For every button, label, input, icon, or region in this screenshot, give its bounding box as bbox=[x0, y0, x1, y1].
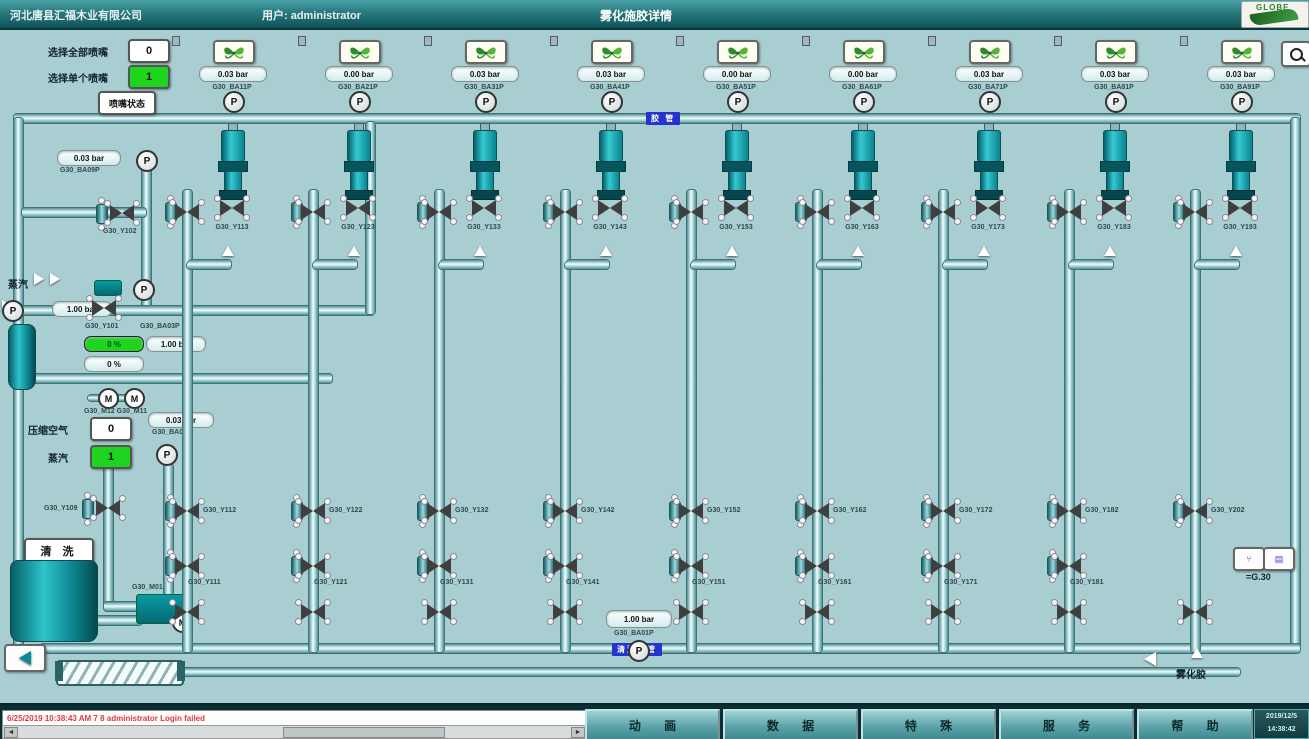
actuator-cap bbox=[1101, 190, 1129, 200]
valve-state-dots bbox=[170, 600, 175, 605]
lower-valve-bottom-tag: G30_Y121 bbox=[314, 579, 347, 586]
butterfly-icon bbox=[852, 45, 876, 60]
nozzle-valve[interactable] bbox=[346, 200, 370, 216]
nozzle-gauge-icon: P bbox=[853, 91, 875, 113]
valve-state-dots bbox=[971, 196, 976, 201]
bend-pipe bbox=[943, 260, 987, 269]
steam-trap bbox=[94, 280, 122, 296]
actuator-cylinder bbox=[977, 130, 1001, 162]
lower-valve-top-tag: G30_Y182 bbox=[1085, 507, 1118, 514]
nozzle-valve[interactable] bbox=[220, 200, 244, 216]
valve-state-dots bbox=[170, 499, 175, 504]
lower-valve-bottom-tag: G30_Y141 bbox=[566, 579, 599, 586]
branch-valve[interactable] bbox=[679, 204, 703, 220]
lower-valve-top[interactable] bbox=[805, 503, 829, 519]
scroll-left-icon[interactable]: ◄ bbox=[4, 727, 18, 738]
nozzle-pressure-tag: G30_BA91P bbox=[1180, 84, 1300, 91]
nozzle-pressure-display: 0.00 bar bbox=[829, 66, 897, 82]
nozzle-pressure-tag: G30_BA71P bbox=[928, 84, 1048, 91]
branch-valve[interactable] bbox=[931, 204, 955, 220]
nozzle-column: 0.03 bar G30_BA41P P G30_Y143 G30_Y142 G… bbox=[550, 36, 670, 681]
nozzle-gauge-icon: P bbox=[475, 91, 497, 113]
gauge-stem bbox=[676, 36, 684, 46]
valve-state-dots bbox=[1052, 600, 1057, 605]
butterfly-icon bbox=[726, 45, 750, 60]
nozzle-gauge-icon: P bbox=[979, 91, 1001, 113]
gauge-stem bbox=[424, 36, 432, 46]
drain-valve[interactable] bbox=[301, 604, 325, 620]
valve-state-dots bbox=[674, 554, 679, 559]
actuator-cylinder bbox=[1229, 130, 1253, 162]
nozzle-column: 0.03 bar G30_BA11P P G30_Y113 G30_Y112 G… bbox=[172, 36, 292, 681]
nozzle-select-button[interactable] bbox=[843, 40, 885, 64]
steam2-value[interactable]: 1 bbox=[90, 445, 132, 469]
motors-tag: G30_M12 G30_M11 bbox=[84, 408, 147, 415]
lower-valve-bottom-tag: G30_Y111 bbox=[188, 579, 221, 586]
bottom-bar: 6/25/2019 10:38:43 AM 7 8 administrator … bbox=[0, 703, 1309, 739]
valve-state-dots bbox=[341, 196, 346, 201]
nozzle-pressure-display: 0.03 bar bbox=[451, 66, 519, 82]
nozzle-pressure-tag: G30_BA11P bbox=[172, 84, 292, 91]
nozzle-gauge-icon: P bbox=[1231, 91, 1253, 113]
steam2-label: 蒸汽 bbox=[48, 450, 68, 465]
nozzle-column: 0.00 bar G30_BA61P P G30_Y163 G30_Y162 G… bbox=[802, 36, 922, 681]
nozzle-pressure-display: 0.03 bar bbox=[1081, 66, 1149, 82]
wash-water-tank bbox=[10, 560, 98, 642]
nozzle-column: 0.03 bar G30_BA91P P G30_Y193 G30_Y202 bbox=[1180, 36, 1300, 681]
valve-state-dots bbox=[1178, 499, 1183, 504]
valve-state-dots bbox=[548, 499, 553, 504]
actuator-cap bbox=[219, 190, 247, 200]
alarm-scrollbar[interactable]: ◄ ► bbox=[2, 725, 587, 739]
actuator-cap bbox=[975, 190, 1003, 200]
actuator-lower-cylinder bbox=[602, 171, 620, 191]
actuator-cap bbox=[345, 190, 373, 200]
valve-state-dots bbox=[296, 600, 301, 605]
back-button[interactable] bbox=[4, 644, 46, 672]
valve-state-dots bbox=[296, 554, 301, 559]
valve-state-dots bbox=[548, 200, 553, 205]
valve-actuator bbox=[82, 499, 94, 519]
percent-display: 0 % bbox=[84, 356, 144, 372]
logged-in-user: 用户: administrator bbox=[262, 7, 361, 23]
select-all-nozzles-value[interactable]: 0 bbox=[128, 39, 170, 63]
valve-state-dots bbox=[1178, 200, 1183, 205]
nozzle-column: 0.03 bar G30_BA71P P G30_Y173 G30_Y172 G… bbox=[928, 36, 1048, 681]
lower-valve-bottom[interactable] bbox=[931, 558, 955, 574]
actuator-cap bbox=[849, 190, 877, 200]
time-text: 14:38:42 bbox=[1255, 723, 1308, 736]
lower-valve-bottom-tag: G30_Y171 bbox=[944, 579, 977, 586]
valve-state-dots bbox=[215, 196, 220, 201]
valve-state-dots bbox=[105, 201, 110, 206]
nozzle-valve[interactable] bbox=[1102, 200, 1126, 216]
valve-open-percent: 0 % bbox=[84, 336, 144, 352]
actuator-cylinder bbox=[599, 130, 623, 162]
valve-y102[interactable] bbox=[110, 205, 134, 221]
drain-valve[interactable] bbox=[931, 604, 955, 620]
flow-arrow-icon bbox=[600, 246, 612, 256]
lower-valve-bottom[interactable] bbox=[805, 558, 829, 574]
glue-pipe-label: 胶 管 bbox=[646, 112, 680, 125]
lower-valve-bottom[interactable] bbox=[427, 558, 451, 574]
outlet-label: 雾化胶 bbox=[1176, 666, 1206, 681]
lower-valve-top[interactable] bbox=[931, 503, 955, 519]
valve-state-dots bbox=[1052, 200, 1057, 205]
nozzle-select-button[interactable] bbox=[465, 40, 507, 64]
actuator-lower-cylinder bbox=[728, 171, 746, 191]
valve-y101-tag: G30_Y101 bbox=[85, 323, 118, 330]
nozzle-select-button[interactable] bbox=[1221, 40, 1263, 64]
valve-state-dots bbox=[926, 200, 931, 205]
lower-valve-bottom-tag: G30_Y161 bbox=[818, 579, 851, 586]
lower-valve-top-tag: G30_Y202 bbox=[1211, 507, 1244, 514]
valve-y102-tag: G30_Y102 bbox=[103, 228, 136, 235]
menu-button-service[interactable]: 服 务 bbox=[999, 709, 1134, 739]
nozzle-column: 0.03 bar G30_BA31P P G30_Y133 G30_Y132 G… bbox=[424, 36, 544, 681]
bend-pipe bbox=[313, 260, 357, 269]
valve-state-dots bbox=[800, 600, 805, 605]
valve-y101[interactable] bbox=[92, 300, 116, 316]
nozzle-select-button[interactable] bbox=[969, 40, 1011, 64]
flow-arrow-icon bbox=[1230, 246, 1242, 256]
valve-state-dots bbox=[548, 600, 553, 605]
flow-arrow-icon bbox=[348, 246, 360, 256]
actuator-cap bbox=[471, 190, 499, 200]
nozzle-select-button[interactable] bbox=[339, 40, 381, 64]
nozzle-gauge-icon: P bbox=[349, 91, 371, 113]
drain-valve[interactable] bbox=[175, 604, 199, 620]
menu-button-special[interactable]: 特 殊 bbox=[861, 709, 996, 739]
nozzle-column: 0.03 bar G30_BA81P P G30_Y183 G30_Y182 G… bbox=[1054, 36, 1174, 681]
nozzle-pressure-display: 0.03 bar bbox=[199, 66, 267, 82]
pressure-gauge-icon: P bbox=[136, 150, 158, 172]
date-text: 2019/12/5 bbox=[1255, 710, 1308, 723]
butterfly-icon bbox=[222, 45, 246, 60]
valve-state-dots bbox=[87, 296, 92, 301]
nozzle-valve[interactable] bbox=[1228, 200, 1252, 216]
compressed-air-label: 压缩空气 bbox=[28, 422, 68, 437]
lower-valve-bottom-tag: G30_Y181 bbox=[1070, 579, 1103, 586]
company-logo: GLOBE bbox=[1241, 1, 1309, 28]
valve-state-dots bbox=[926, 554, 931, 559]
nozzle-pressure-display: 0.03 bar bbox=[955, 66, 1023, 82]
page-title: 雾化施胶详情 bbox=[600, 7, 672, 24]
valve-state-dots bbox=[674, 499, 679, 504]
nozzle-pressure-tag: G30_BA21P bbox=[298, 84, 418, 91]
lower-valve-top[interactable] bbox=[301, 503, 325, 519]
select-single-nozzle-label: 选择单个喷嘴 bbox=[48, 70, 108, 85]
valve-state-dots bbox=[170, 200, 175, 205]
nozzle-select-button[interactable] bbox=[1095, 40, 1137, 64]
lower-valve-bottom[interactable] bbox=[301, 558, 325, 574]
butterfly-icon bbox=[600, 45, 624, 60]
scada-screen: 河北唐县汇福木业有限公司 用户: administrator 雾化施胶详情 GL… bbox=[0, 0, 1309, 739]
bend-pipe bbox=[691, 260, 735, 269]
nozzle-valve[interactable] bbox=[598, 200, 622, 216]
lower-valve-top-tag: G30_Y112 bbox=[203, 507, 236, 514]
butterfly-icon bbox=[348, 45, 372, 60]
branch-valve[interactable] bbox=[553, 204, 577, 220]
valve-y109-tag: G30_Y109 bbox=[44, 505, 77, 512]
valve-state-dots bbox=[926, 600, 931, 605]
valve-state-dots bbox=[170, 554, 175, 559]
pump-tag: G30_M01 bbox=[132, 584, 163, 591]
flow-arrow-icon bbox=[50, 273, 60, 285]
valve-state-dots bbox=[674, 600, 679, 605]
valve-state-dots bbox=[674, 200, 679, 205]
flow-arrow-icon bbox=[726, 246, 738, 256]
lower-valve-top-tag: G30_Y142 bbox=[581, 507, 614, 514]
lower-valve-bottom-tag: G30_Y131 bbox=[440, 579, 473, 586]
actuator-cylinder bbox=[347, 130, 371, 162]
actuator-lower-cylinder bbox=[476, 171, 494, 191]
valve-state-dots bbox=[800, 554, 805, 559]
gauge-stem bbox=[928, 36, 936, 46]
valve-y109[interactable] bbox=[96, 500, 120, 516]
gauge-stem bbox=[1180, 36, 1188, 46]
valve-state-dots bbox=[926, 499, 931, 504]
nozzle-gauge-icon: P bbox=[223, 91, 245, 113]
actuator-lower-cylinder bbox=[1106, 171, 1124, 191]
bend-pipe bbox=[187, 260, 231, 269]
bend-pipe bbox=[1069, 260, 1113, 269]
nozzle-select-button[interactable] bbox=[591, 40, 633, 64]
nozzle-valve[interactable] bbox=[976, 200, 1000, 216]
gauge-stem bbox=[550, 36, 558, 46]
valve-state-dots bbox=[422, 600, 427, 605]
actuator-lower-cylinder bbox=[224, 171, 242, 191]
actuator-lower-cylinder bbox=[980, 171, 998, 191]
nozzle-select-button[interactable] bbox=[717, 40, 759, 64]
title-bar: 河北唐县汇福木业有限公司 用户: administrator 雾化施胶详情 GL… bbox=[0, 0, 1309, 30]
valve-state-dots bbox=[719, 196, 724, 201]
butterfly-icon bbox=[1104, 45, 1128, 60]
lower-valve-bottom[interactable] bbox=[553, 558, 577, 574]
actuator-cylinder bbox=[473, 130, 497, 162]
nozzle-pressure-tag: G30_BA61P bbox=[802, 84, 922, 91]
gauge-stem bbox=[1054, 36, 1062, 46]
actuator-lower-cylinder bbox=[350, 171, 368, 191]
lower-valve-top-tag: G30_Y132 bbox=[455, 507, 488, 514]
nozzle-pressure-display: 0.03 bar bbox=[577, 66, 645, 82]
lower-valve-bottom[interactable] bbox=[1057, 558, 1081, 574]
lower-valve-bottom-tag: G30_Y151 bbox=[692, 579, 725, 586]
valve-state-dots bbox=[467, 196, 472, 201]
butterfly-icon bbox=[474, 45, 498, 60]
branch-valve[interactable] bbox=[175, 204, 199, 220]
lower-valve-top[interactable] bbox=[553, 503, 577, 519]
lower-valve-bottom[interactable] bbox=[679, 558, 703, 574]
nozzle-pressure-display: 0.00 bar bbox=[703, 66, 771, 82]
branch-valve[interactable] bbox=[301, 204, 325, 220]
valve-state-dots bbox=[593, 196, 598, 201]
drain-valve[interactable] bbox=[679, 604, 703, 620]
lower-valve-top[interactable] bbox=[175, 503, 199, 519]
company-name: 河北唐县汇福木业有限公司 bbox=[10, 7, 142, 23]
nozzle-valve[interactable] bbox=[724, 200, 748, 216]
valve-state-dots bbox=[422, 554, 427, 559]
valve-state-dots bbox=[800, 499, 805, 504]
valve-state-dots bbox=[1052, 499, 1057, 504]
scroll-thumb[interactable] bbox=[283, 727, 445, 738]
bend-pipe bbox=[565, 260, 609, 269]
menu-button-animation[interactable]: 动 画 bbox=[585, 709, 720, 739]
lower-valve-top-tag: G30_Y152 bbox=[707, 507, 740, 514]
nozzle-gauge-icon: P bbox=[601, 91, 623, 113]
bend-pipe bbox=[1195, 260, 1239, 269]
valve-state-dots bbox=[422, 499, 427, 504]
motor-m11-icon[interactable]: M bbox=[124, 388, 145, 409]
flow-arrow-icon bbox=[474, 246, 486, 256]
actuator-cap bbox=[1227, 190, 1255, 200]
branch-valve[interactable] bbox=[1057, 204, 1081, 220]
nozzle-status-button[interactable]: 喷嘴状态 bbox=[98, 91, 156, 115]
valve-actuator bbox=[96, 204, 108, 224]
valve-state-dots bbox=[91, 496, 96, 501]
steam-pressure-gauge-icon: P bbox=[2, 300, 24, 322]
gauge-stem bbox=[172, 36, 180, 46]
bend-pipe bbox=[817, 260, 861, 269]
branch-valve[interactable] bbox=[805, 204, 829, 220]
valve-state-dots bbox=[422, 200, 427, 205]
alarm-line[interactable]: 6/25/2019 10:38:43 AM 7 8 administrator … bbox=[2, 710, 591, 726]
menu-button-data[interactable]: 数 据 bbox=[723, 709, 858, 739]
outlet-arrow-icon bbox=[1191, 648, 1203, 658]
valve-state-dots bbox=[296, 499, 301, 504]
nozzle-pressure-display: 0.03 bar bbox=[1207, 66, 1275, 82]
nozzle-select-button[interactable] bbox=[213, 40, 255, 64]
drain-valve[interactable] bbox=[805, 604, 829, 620]
select-single-nozzle-value[interactable]: 1 bbox=[128, 65, 170, 89]
nozzle-gauge-icon: P bbox=[1105, 91, 1127, 113]
lower-valve-top-tag: G30_Y122 bbox=[329, 507, 362, 514]
drain-valve[interactable] bbox=[553, 604, 577, 620]
nozzle-pressure-tag: G30_BA31P bbox=[424, 84, 544, 91]
lower-valve-top-tag: G30_Y172 bbox=[959, 507, 992, 514]
flow-arrow-icon bbox=[1144, 652, 1156, 666]
wash-gauge-icon: P bbox=[628, 640, 650, 662]
actuator-cylinder bbox=[221, 130, 245, 162]
actuator-lower-cylinder bbox=[854, 171, 872, 191]
actuator-cylinder bbox=[1103, 130, 1127, 162]
valve-state-dots bbox=[548, 554, 553, 559]
nozzle-column: 0.00 bar G30_BA51P P G30_Y153 G30_Y152 G… bbox=[676, 36, 796, 681]
nozzle-pressure-display: 0.00 bar bbox=[325, 66, 393, 82]
branch-valve[interactable] bbox=[1183, 204, 1207, 220]
valve-state-dots bbox=[296, 200, 301, 205]
flow-arrow-icon bbox=[222, 246, 234, 256]
nozzle-column: 0.00 bar G30_BA21P P G30_Y123 G30_Y122 G… bbox=[298, 36, 418, 681]
scroll-right-icon[interactable]: ► bbox=[571, 727, 585, 738]
select-all-nozzles-label: 选择全部喷嘴 bbox=[48, 44, 108, 59]
gauge-stem bbox=[802, 36, 810, 46]
drain-valve[interactable] bbox=[1057, 604, 1081, 620]
nozzle-pressure-tag: G30_BA81P bbox=[1054, 84, 1174, 91]
motor-m12-icon[interactable]: M bbox=[98, 388, 119, 409]
datetime-display: 2019/12/5 14:38:42 bbox=[1254, 709, 1309, 739]
drain-valve[interactable] bbox=[427, 604, 451, 620]
butterfly-icon bbox=[1230, 45, 1254, 60]
steam-label: 蒸汽 bbox=[8, 276, 28, 291]
pressure-tag: G30_BA09P bbox=[60, 167, 100, 174]
nozzle-gauge-icon: P bbox=[727, 91, 749, 113]
wash-feed-pipe bbox=[104, 458, 113, 610]
valve-state-dots bbox=[1223, 196, 1228, 201]
nozzle-valve[interactable] bbox=[472, 200, 496, 216]
valve-state-dots bbox=[1097, 196, 1102, 201]
actuator-cylinder bbox=[851, 130, 875, 162]
back-arrow-icon bbox=[19, 651, 31, 665]
screw-conveyor bbox=[56, 660, 184, 686]
lower-valve-top-tag: G30_Y162 bbox=[833, 507, 866, 514]
flow-arrow-icon bbox=[34, 273, 44, 285]
actuator-lower-cylinder bbox=[1232, 171, 1250, 191]
condensate-pot bbox=[8, 324, 36, 390]
bend-pipe bbox=[439, 260, 483, 269]
nozzle-pressure-tag: G30_BA41P bbox=[550, 84, 670, 91]
nozzle-pressure-tag: G30_BA51P bbox=[676, 84, 796, 91]
nozzle-valve[interactable] bbox=[850, 200, 874, 216]
menu-button-help[interactable]: 帮 助 bbox=[1137, 709, 1253, 739]
actuator-cylinder bbox=[725, 130, 749, 162]
lower-valve-top[interactable] bbox=[1057, 503, 1081, 519]
branch-valve[interactable] bbox=[427, 204, 451, 220]
butterfly-icon bbox=[978, 45, 1002, 60]
lower-valve-top[interactable] bbox=[679, 503, 703, 519]
valve-state-dots bbox=[1178, 600, 1183, 605]
valve-state-dots bbox=[1052, 554, 1057, 559]
pressure-display: 0.03 bar bbox=[57, 150, 121, 166]
flow-arrow-icon bbox=[978, 246, 990, 256]
flow-arrow-icon bbox=[852, 246, 864, 256]
gauge-icon: P bbox=[133, 279, 155, 301]
valve-state-dots bbox=[800, 200, 805, 205]
actuator-cap bbox=[597, 190, 625, 200]
gauge-stem bbox=[298, 36, 306, 46]
lower-valve-bottom[interactable] bbox=[175, 558, 199, 574]
compressed-air-value[interactable]: 0 bbox=[90, 417, 132, 441]
lower-valve-top[interactable] bbox=[427, 503, 451, 519]
lower-valve-top[interactable] bbox=[1183, 503, 1207, 519]
actuator-cap bbox=[723, 190, 751, 200]
flow-arrow-icon bbox=[1104, 246, 1116, 256]
drain-valve[interactable] bbox=[1183, 604, 1207, 620]
valve-state-dots bbox=[845, 196, 850, 201]
